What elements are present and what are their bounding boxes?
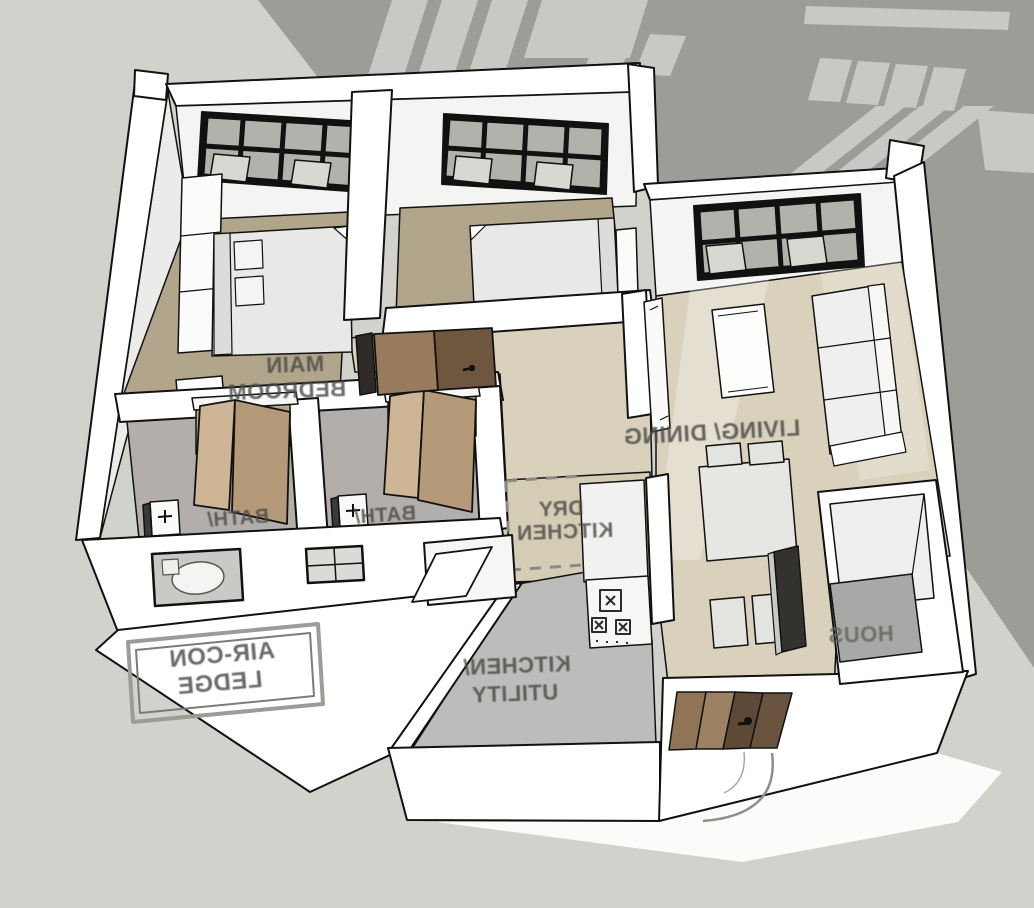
open-pane (534, 162, 573, 190)
label-dry-kitchen-line1: DRY (538, 497, 584, 522)
floorplan-render: MAIN BEDROOM BATH/ BATH/ LIVING/ DINING … (0, 0, 1034, 908)
living-window (694, 194, 864, 280)
kitchen-front-wall (388, 742, 660, 821)
open-pane (706, 243, 746, 274)
floorplan-scene: MAIN BEDROOM BATH/ BATH/ LIVING/ DINING … (0, 0, 1034, 908)
label-bath1: BATH/ (206, 505, 270, 531)
headboard (214, 233, 232, 355)
bifold-door-panel (384, 390, 424, 498)
toilet-tank (162, 559, 179, 575)
main-bedroom-window (198, 112, 366, 192)
door-leaf (374, 331, 438, 395)
bed (212, 226, 352, 356)
pillow (234, 240, 263, 270)
label-kitchen-utility-line1: KITCHEN/ (463, 651, 572, 680)
label-main-bedroom-line2: BEDROOM (227, 376, 346, 405)
label-kitchen-utility-line2: UTILITY (471, 679, 558, 707)
bedroom2-window (442, 114, 608, 194)
dining-chair (748, 441, 784, 465)
headboard (598, 218, 618, 298)
open-pane (787, 236, 827, 267)
shower-screen-edge (143, 503, 152, 539)
household-shelter (818, 480, 963, 684)
open-pane (291, 160, 331, 188)
bedroom-door (356, 328, 496, 395)
bifold-door-panel (194, 400, 235, 510)
pillow (235, 276, 264, 306)
dining-chair (706, 443, 742, 467)
apartment-unit: MAIN BEDROOM BATH/ BATH/ LIVING/ DINING … (76, 63, 976, 821)
pillar (134, 70, 168, 100)
label-dry-kitchen-line2: KITCHEN (516, 519, 614, 545)
coffee-table (712, 304, 774, 398)
shelter-floor (830, 574, 922, 662)
bedside-cabinet (616, 228, 638, 296)
label-bath2: BATH/ (353, 502, 417, 528)
label-household-shelter: HOUS (828, 621, 894, 648)
dining-table (699, 459, 797, 561)
bath-window-opening (306, 546, 364, 583)
open-pane (453, 156, 492, 184)
dining-chair (710, 597, 748, 648)
bed (470, 218, 616, 306)
bifold-door-panel (418, 390, 476, 512)
door-handle (738, 723, 748, 724)
door-leaf (434, 328, 496, 390)
toilet-window-opening (152, 549, 243, 606)
door-frame (356, 333, 376, 395)
wall (628, 64, 658, 192)
label-main-bedroom-line1: MAIN (265, 351, 324, 378)
entrance-door (669, 692, 792, 750)
